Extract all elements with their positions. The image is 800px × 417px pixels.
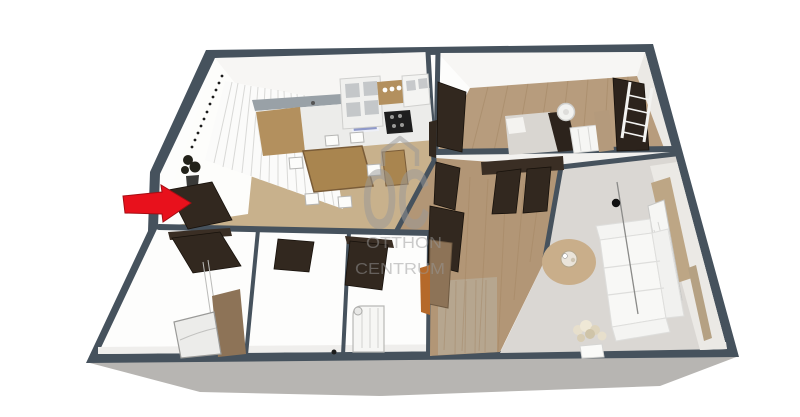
wc-door — [274, 239, 314, 272]
watermark-line2: CENTRUM — [355, 261, 445, 278]
corridor-door-leaf-right — [523, 167, 551, 213]
floor-lamp-head — [612, 199, 620, 207]
cup — [571, 258, 575, 262]
dining-chair — [338, 196, 352, 208]
corridor-door-leaf-left — [492, 169, 521, 214]
kitchen-cabinet-tan — [256, 107, 305, 156]
floor-drain — [332, 350, 337, 355]
floor-plan-image: OC OTTHON CENTRUM — [0, 0, 800, 417]
bed-pillow — [506, 117, 526, 134]
flower-pot — [580, 344, 604, 358]
radiator — [353, 306, 384, 352]
dining-chair — [350, 132, 364, 143]
dining-chair — [325, 135, 339, 146]
ceiling-lamp-center — [563, 109, 569, 115]
radiator-knob — [354, 307, 362, 315]
watermark-logo-text: OC — [362, 152, 430, 246]
watermark-line1: OTTHON — [366, 235, 442, 252]
floor-plan-svg: OC OTTHON CENTRUM — [0, 0, 800, 417]
bedroom-wardrobe — [437, 82, 466, 152]
hall-door-leaf-upper — [434, 162, 460, 210]
hall-top-door — [429, 120, 437, 158]
cup — [563, 254, 568, 259]
stove — [384, 110, 413, 134]
faucet-icon — [311, 101, 315, 105]
dining-chair — [305, 193, 319, 205]
dining-chair — [289, 157, 303, 169]
